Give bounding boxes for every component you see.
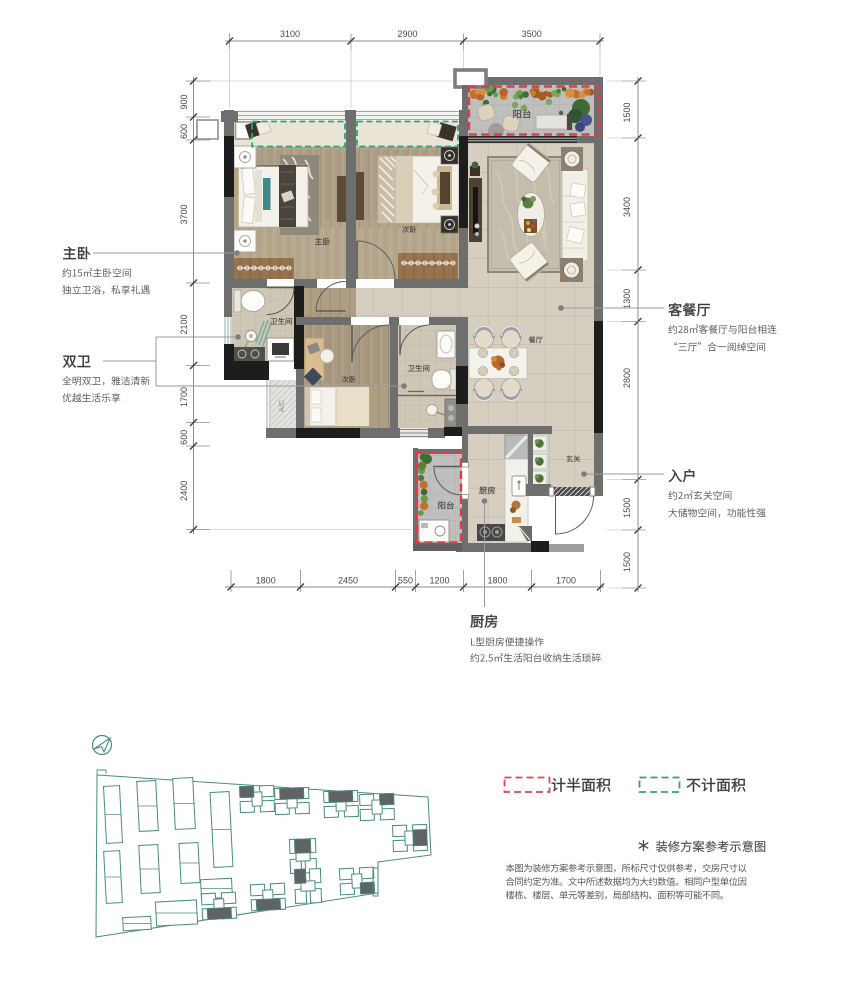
- svg-text:3700: 3700: [179, 204, 189, 224]
- svg-text:3500: 3500: [522, 29, 542, 39]
- svg-text:900: 900: [179, 94, 189, 109]
- svg-text:1200: 1200: [429, 576, 449, 586]
- svg-text:1500: 1500: [622, 498, 632, 518]
- svg-text:2900: 2900: [397, 29, 417, 39]
- svg-text:1700: 1700: [179, 387, 189, 407]
- svg-text:1800: 1800: [256, 576, 276, 586]
- svg-text:600: 600: [179, 430, 189, 445]
- svg-text:3100: 3100: [280, 29, 300, 39]
- svg-text:1500: 1500: [622, 102, 632, 122]
- svg-text:1500: 1500: [622, 552, 632, 572]
- svg-text:2400: 2400: [179, 481, 189, 501]
- svg-text:2100: 2100: [179, 314, 189, 334]
- svg-text:600: 600: [179, 124, 189, 139]
- svg-text:2800: 2800: [622, 368, 632, 388]
- svg-text:A/C: A/C: [277, 399, 286, 412]
- svg-text:3400: 3400: [622, 197, 632, 217]
- svg-text:1300: 1300: [622, 289, 632, 309]
- svg-text:550: 550: [398, 576, 413, 586]
- svg-text:1700: 1700: [556, 576, 576, 586]
- svg-text:2450: 2450: [338, 576, 358, 586]
- svg-text:1800: 1800: [487, 576, 507, 586]
